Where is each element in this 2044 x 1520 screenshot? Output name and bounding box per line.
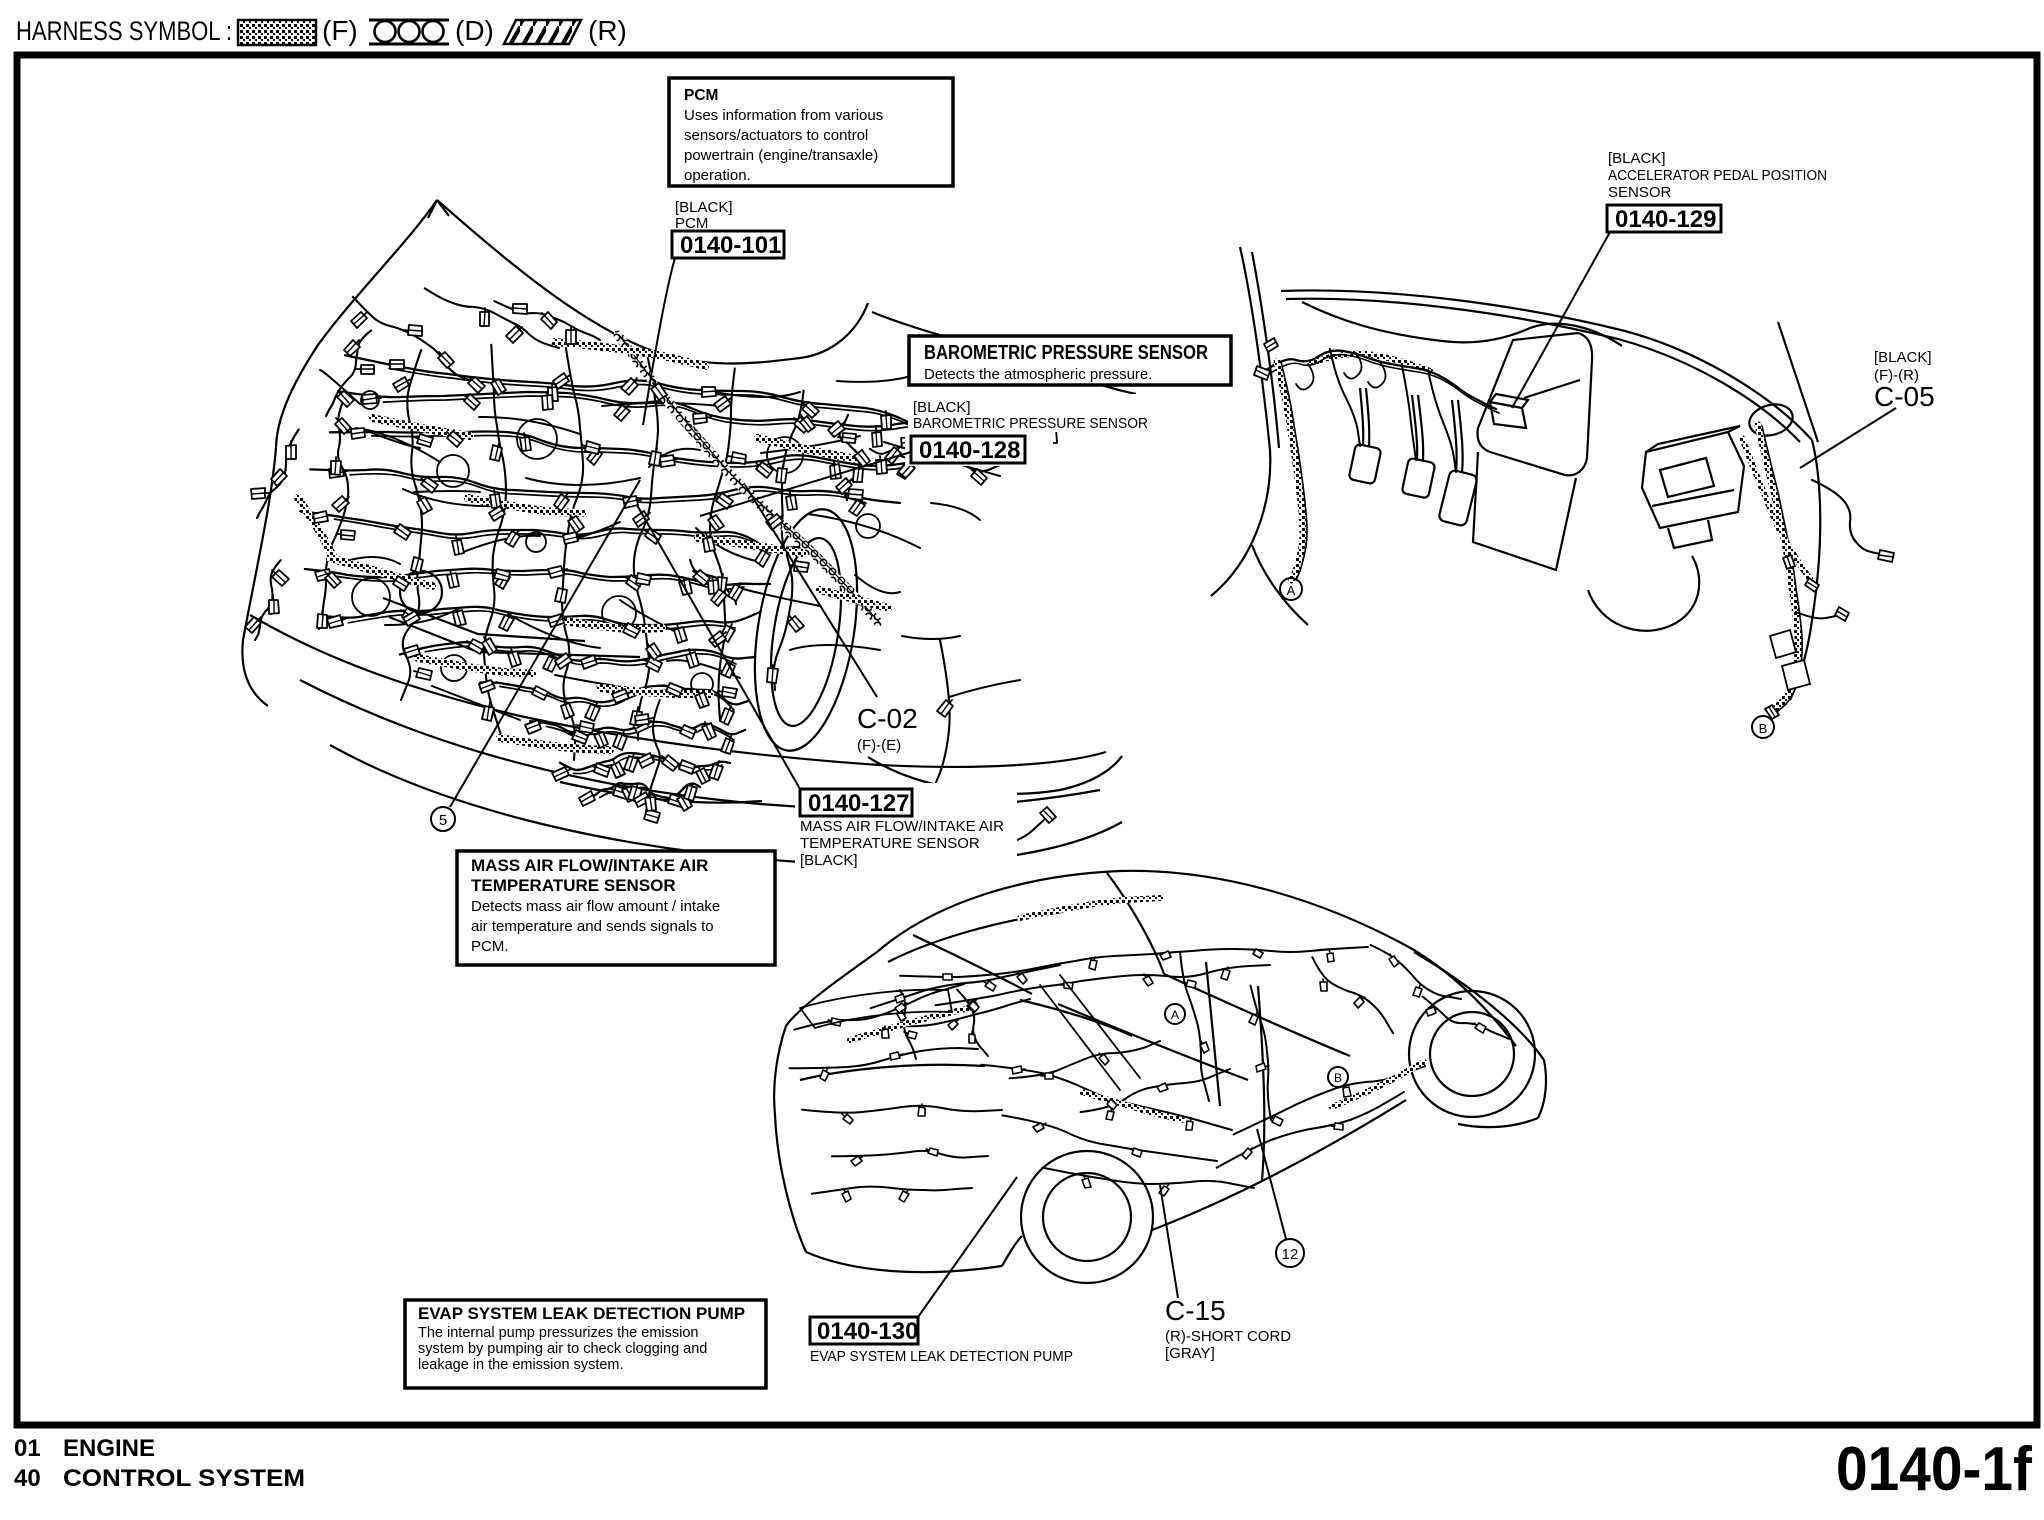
svg-text:(D): (D) — [455, 15, 494, 46]
svg-text:Detects the atmospheric pressu: Detects the atmospheric pressure. — [924, 366, 1152, 383]
svg-text:PCM.: PCM. — [471, 938, 509, 955]
svg-text:MASS AIR FLOW/INTAKE AIR: MASS AIR FLOW/INTAKE AIR — [800, 818, 1004, 835]
svg-text:B: B — [1759, 721, 1768, 736]
svg-text:0140-128: 0140-128 — [919, 437, 1020, 464]
svg-text:(F): (F) — [322, 15, 358, 46]
svg-text:0140-129: 0140-129 — [1615, 206, 1716, 233]
svg-text:C-02: C-02 — [857, 703, 918, 734]
svg-text:The internal pump pressurizes: The internal pump pressurizes the emissi… — [418, 1325, 698, 1341]
svg-text:Uses information from various: Uses information from various — [684, 107, 883, 124]
svg-text:0140-101: 0140-101 — [680, 232, 781, 259]
svg-text:powertrain (engine/transaxle): powertrain (engine/transaxle) — [684, 147, 878, 164]
svg-text:A: A — [1171, 1008, 1179, 1022]
svg-text:[GRAY]: [GRAY] — [1165, 1345, 1215, 1362]
svg-text:leakage in the emission system: leakage in the emission system. — [418, 1357, 624, 1373]
svg-text:system by pumping air to check: system by pumping air to check clogging … — [418, 1341, 707, 1357]
svg-text:(R): (R) — [588, 15, 627, 46]
svg-text:01: 01 — [14, 1435, 41, 1462]
svg-text:BAROMETRIC PRESSURE SENSOR: BAROMETRIC PRESSURE SENSOR — [913, 415, 1148, 432]
svg-text:BAROMETRIC PRESSURE SENSOR: BAROMETRIC PRESSURE SENSOR — [924, 342, 1208, 364]
svg-text:[BLACK]: [BLACK] — [675, 199, 733, 216]
svg-text:operation.: operation. — [684, 167, 751, 184]
svg-text:TEMPERATURE SENSOR: TEMPERATURE SENSOR — [471, 876, 676, 895]
svg-text:EVAP SYSTEM LEAK DETECTION PUM: EVAP SYSTEM LEAK DETECTION PUMP — [418, 1304, 745, 1323]
svg-text:0140-127: 0140-127 — [808, 790, 909, 817]
svg-text:SENSOR: SENSOR — [1608, 184, 1672, 201]
svg-text:(F)-(E): (F)-(E) — [857, 737, 901, 754]
svg-text:HARNESS SYMBOL :: HARNESS SYMBOL : — [16, 16, 232, 46]
svg-text:12: 12 — [1282, 1246, 1299, 1263]
svg-text:40: 40 — [14, 1465, 41, 1492]
svg-text:sensors/actuators to control: sensors/actuators to control — [684, 127, 868, 144]
svg-text:TEMPERATURE SENSOR: TEMPERATURE SENSOR — [800, 835, 980, 852]
svg-text:air temperature and sends sign: air temperature and sends signals to — [471, 918, 714, 935]
svg-text:[BLACK]: [BLACK] — [1874, 349, 1932, 366]
svg-text:Detects mass air flow amount /: Detects mass air flow amount / intake — [471, 898, 720, 915]
svg-text:CONTROL SYSTEM: CONTROL SYSTEM — [63, 1465, 305, 1492]
svg-text:PCM: PCM — [675, 215, 708, 232]
svg-text:ENGINE: ENGINE — [63, 1435, 155, 1462]
svg-text:[BLACK]: [BLACK] — [913, 399, 971, 416]
svg-text:C-15: C-15 — [1165, 1295, 1226, 1326]
svg-text:[BLACK]: [BLACK] — [1608, 150, 1666, 167]
svg-text:0140-130: 0140-130 — [817, 1318, 918, 1345]
svg-text:EVAP SYSTEM LEAK DETECTION PUM: EVAP SYSTEM LEAK DETECTION PUMP — [810, 1348, 1073, 1365]
svg-text:[BLACK]: [BLACK] — [800, 852, 858, 869]
svg-text:ACCELERATOR PEDAL POSITION: ACCELERATOR PEDAL POSITION — [1608, 167, 1827, 184]
svg-text:C-05: C-05 — [1874, 381, 1935, 412]
svg-text:MASS AIR FLOW/INTAKE AIR: MASS AIR FLOW/INTAKE AIR — [471, 856, 708, 875]
svg-text:0140-1f: 0140-1f — [1836, 1435, 2032, 1504]
svg-text:PCM: PCM — [684, 87, 718, 104]
svg-text:B: B — [1334, 1071, 1342, 1085]
svg-text:(R)-SHORT CORD: (R)-SHORT CORD — [1165, 1328, 1291, 1345]
svg-text:5: 5 — [439, 812, 447, 829]
svg-text:A: A — [1287, 583, 1296, 598]
